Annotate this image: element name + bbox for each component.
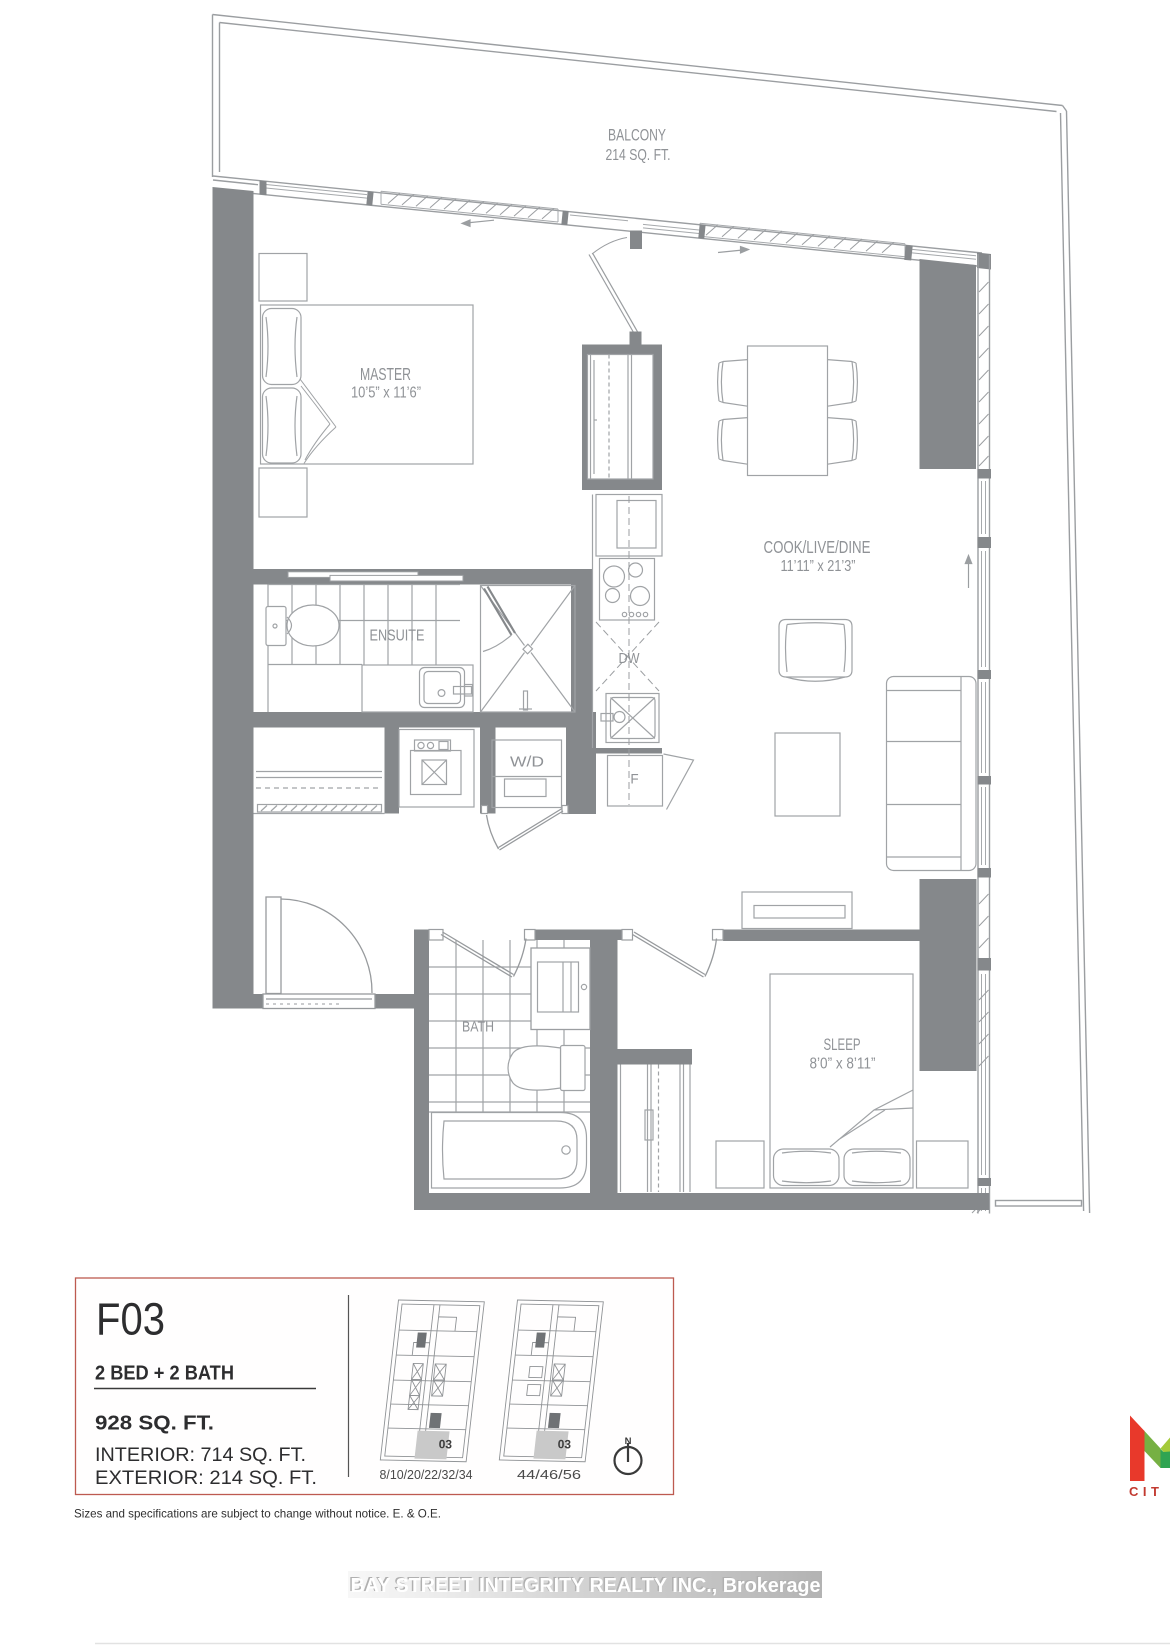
svg-text:COOK/LIVE/DINE: COOK/LIVE/DINE bbox=[764, 537, 871, 557]
svg-text:928 SQ. FT.: 928 SQ. FT. bbox=[95, 1412, 214, 1435]
svg-text:DW: DW bbox=[619, 651, 640, 667]
svg-text:SLEEP: SLEEP bbox=[824, 1035, 861, 1054]
svg-text:BAY STREET INTEGRITY REALTY IN: BAY STREET INTEGRITY REALTY INC., Broker… bbox=[351, 1574, 821, 1597]
svg-text:EXTERIOR: 214 SQ. FT.: EXTERIOR: 214 SQ. FT. bbox=[95, 1467, 317, 1489]
svg-text:8/10/20/22/32/34: 8/10/20/22/32/34 bbox=[380, 1467, 473, 1482]
svg-text:BATH: BATH bbox=[462, 1019, 494, 1036]
svg-text:214 SQ. FT.: 214 SQ. FT. bbox=[606, 147, 671, 164]
svg-text:F03: F03 bbox=[96, 1294, 165, 1345]
svg-text:ENSUITE: ENSUITE bbox=[370, 628, 425, 645]
svg-text:44/46/56: 44/46/56 bbox=[517, 1467, 581, 1482]
svg-text:CIT: CIT bbox=[1129, 1484, 1163, 1499]
svg-text:W/D: W/D bbox=[510, 754, 544, 771]
svg-text:03: 03 bbox=[558, 1437, 572, 1451]
svg-text:Sizes and specifications are s: Sizes and specifications are subject to … bbox=[74, 1507, 441, 1521]
svg-text:BALCONY: BALCONY bbox=[608, 127, 666, 145]
svg-text:F: F bbox=[630, 772, 638, 787]
svg-text:2 BED + 2 BATH: 2 BED + 2 BATH bbox=[95, 1362, 234, 1385]
svg-text:8’0” x 8’11”: 8’0” x 8’11” bbox=[810, 1056, 876, 1073]
svg-text:10’5” x 11’6”: 10’5” x 11’6” bbox=[351, 385, 421, 402]
svg-text:N: N bbox=[625, 1436, 632, 1447]
svg-text:03: 03 bbox=[439, 1437, 453, 1451]
svg-text:11’11” x 21’3”: 11’11” x 21’3” bbox=[781, 558, 856, 575]
svg-text:INTERIOR: 714 SQ. FT.: INTERIOR: 714 SQ. FT. bbox=[95, 1444, 306, 1466]
svg-text:MASTER: MASTER bbox=[360, 364, 411, 384]
